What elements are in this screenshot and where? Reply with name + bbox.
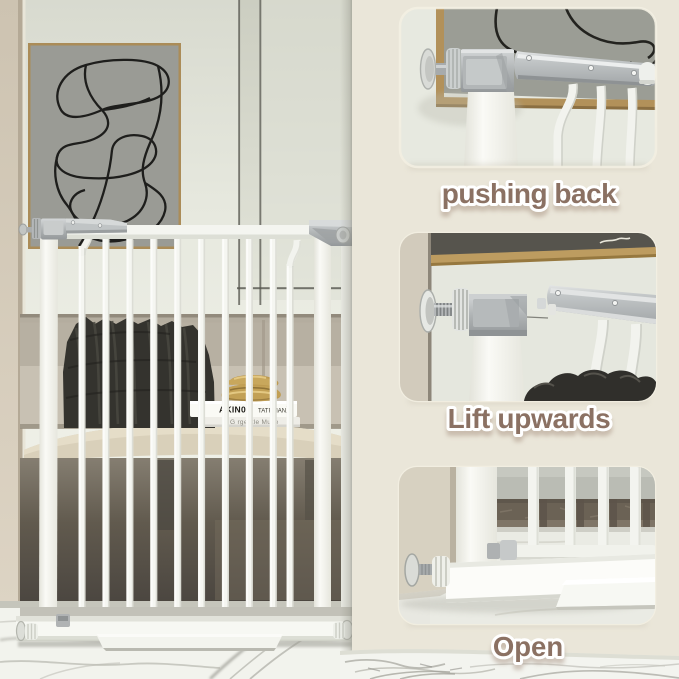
svg-text:Open: Open — [493, 631, 563, 662]
svg-text:Lift upwards: Lift upwards — [448, 403, 611, 434]
svg-text:pushing back: pushing back — [442, 178, 617, 209]
